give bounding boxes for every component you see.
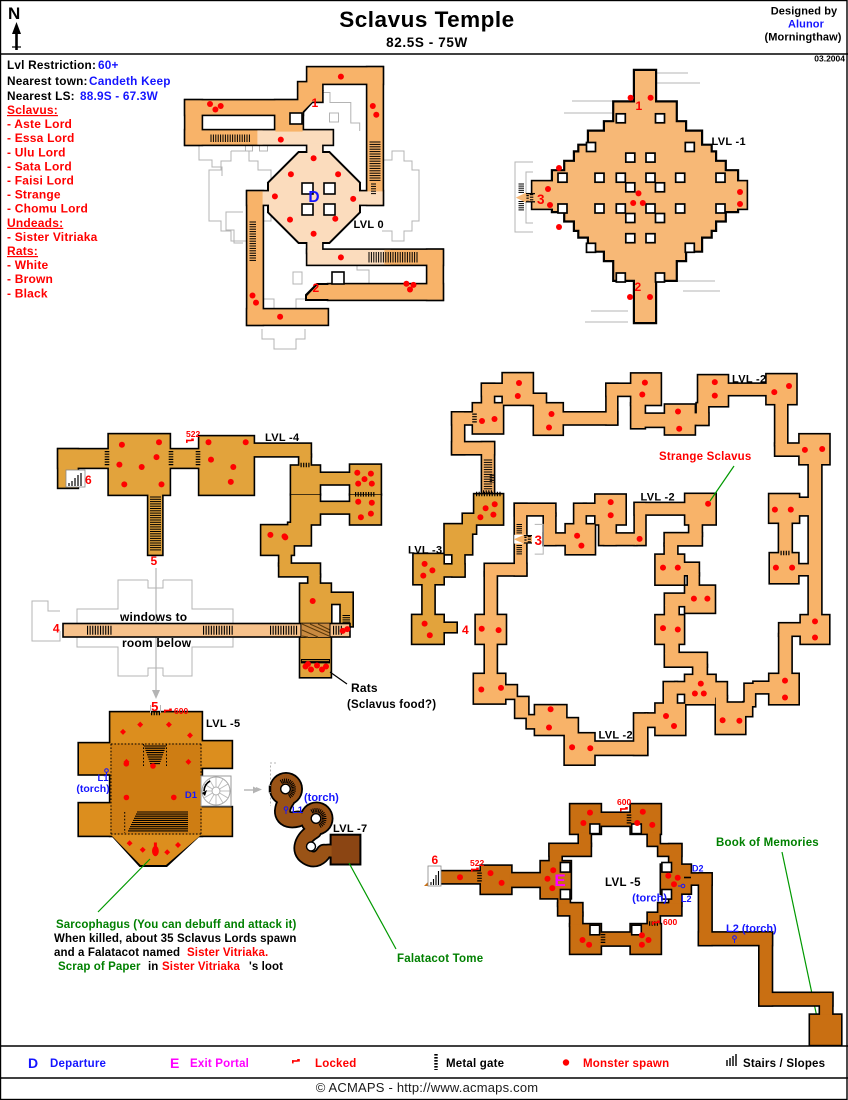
svg-text:Designed by: Designed by [771, 6, 838, 18]
svg-text:82.5S - 75W: 82.5S - 75W [386, 35, 468, 50]
svg-text:in: in [148, 961, 158, 973]
svg-text:4: 4 [462, 623, 469, 637]
svg-text:Nearest town:: Nearest town: [7, 74, 88, 88]
svg-text:Falatacot Tome: Falatacot Tome [397, 953, 483, 965]
svg-text:- Ulu Lord: - Ulu Lord [7, 145, 66, 159]
svg-text:LVL 0: LVL 0 [354, 219, 384, 231]
svg-text:Undeads:: Undeads: [7, 216, 63, 230]
svg-text:(Morningthaw): (Morningthaw) [764, 32, 841, 44]
svg-text:windows to: windows to [119, 610, 187, 624]
svg-text:03.2004: 03.2004 [814, 54, 845, 64]
svg-text:Departure: Departure [50, 1058, 106, 1070]
svg-text:- White: - White [7, 258, 49, 272]
svg-text:L1: L1 [292, 805, 304, 816]
svg-text:522: 522 [470, 858, 484, 868]
svg-text:- Sata Lord: - Sata Lord [7, 159, 72, 173]
svg-text:E: E [554, 871, 565, 890]
svg-text:600: 600 [617, 797, 631, 807]
svg-text:600: 600 [174, 706, 188, 716]
svg-text:2: 2 [312, 281, 319, 295]
svg-text:- Sister Vitriaka: - Sister Vitriaka [7, 230, 98, 244]
svg-text:4: 4 [53, 622, 60, 636]
svg-text:LVL -3: LVL -3 [408, 545, 442, 557]
svg-text:5: 5 [151, 699, 159, 714]
svg-text:Sclavus Temple: Sclavus Temple [339, 7, 514, 32]
svg-text:6: 6 [431, 853, 438, 867]
svg-text:LVL -5: LVL -5 [206, 718, 240, 730]
svg-text:Monster spawn: Monster spawn [583, 1058, 669, 1070]
svg-text:(Sclavus food?): (Sclavus food?) [347, 699, 436, 711]
svg-text:Locked: Locked [315, 1058, 356, 1070]
svg-text:(torch): (torch) [304, 792, 339, 804]
svg-text:600: 600 [663, 917, 677, 927]
svg-text:- Brown: - Brown [7, 272, 53, 286]
svg-text:- Essa Lord: - Essa Lord [7, 131, 75, 145]
svg-text:3: 3 [537, 192, 545, 207]
svg-text:L2: L2 [681, 894, 692, 904]
svg-text:LVL -2: LVL -2 [732, 374, 766, 386]
svg-text:1: 1 [311, 96, 318, 110]
svg-text:Book of Memories: Book of Memories [716, 837, 819, 849]
svg-text:3: 3 [535, 533, 543, 548]
svg-text:L2 (torch): L2 (torch) [726, 923, 777, 935]
svg-text:LVL -4: LVL -4 [265, 432, 300, 444]
svg-text:Alunor: Alunor [788, 19, 825, 31]
svg-text:(torch): (torch) [76, 783, 109, 795]
svg-text:Scrap of Paper: Scrap of Paper [58, 961, 141, 973]
svg-text:LVL -2: LVL -2 [599, 730, 633, 742]
svg-text:D1: D1 [185, 790, 198, 801]
svg-text:and a Falatacot named: and a Falatacot named [54, 947, 180, 959]
svg-text:room below: room below [122, 636, 192, 650]
svg-text:© ACMAPS - http://www.acmaps.c: © ACMAPS - http://www.acmaps.com [316, 1080, 539, 1095]
svg-text:LVL -2: LVL -2 [641, 492, 675, 504]
svg-text:6: 6 [85, 473, 92, 487]
svg-text:D2: D2 [692, 864, 704, 874]
svg-text:Stairs / Slopes: Stairs / Slopes [743, 1058, 825, 1070]
svg-text:LVL -1: LVL -1 [712, 136, 746, 148]
svg-text:- Chomu Lord: - Chomu Lord [7, 202, 88, 216]
svg-text:D: D [308, 189, 319, 206]
svg-text:60+: 60+ [98, 58, 119, 72]
svg-text:D: D [28, 1055, 38, 1071]
svg-text:'s loot: 's loot [249, 961, 283, 973]
svg-text:Sister Vitriaka.: Sister Vitriaka. [187, 947, 268, 959]
svg-text:- Strange: - Strange [7, 188, 61, 202]
svg-text:5: 5 [150, 554, 157, 568]
svg-text:Rats:: Rats: [7, 244, 38, 258]
svg-text:1: 1 [635, 99, 642, 113]
svg-text:E: E [170, 1055, 179, 1071]
svg-text:- Black: - Black [7, 286, 48, 300]
svg-text:N: N [8, 4, 21, 23]
svg-text:Sarcophagus (You can debuff a: Sarcophagus (You can debuff and attack i… [56, 919, 296, 931]
svg-text:LVL -5: LVL -5 [605, 877, 641, 889]
svg-text:(torch): (torch) [632, 893, 667, 905]
svg-text:Exit Portal: Exit Portal [190, 1058, 249, 1070]
svg-text:Rats: Rats [351, 681, 378, 695]
svg-text:2: 2 [634, 280, 641, 294]
svg-text:LVL -7: LVL -7 [333, 823, 367, 835]
svg-text:Nearest LS:: Nearest LS: [7, 89, 75, 103]
svg-text:- Aste Lord: - Aste Lord [7, 117, 72, 131]
svg-text:Sister Vitriaka: Sister Vitriaka [162, 961, 241, 973]
svg-text:88.9S - 67.3W: 88.9S - 67.3W [80, 89, 159, 103]
svg-text:522: 522 [186, 429, 200, 439]
svg-text:- Faisi Lord: - Faisi Lord [7, 174, 74, 188]
svg-text:Sclavus:: Sclavus: [7, 103, 58, 117]
svg-text:Strange Sclavus: Strange Sclavus [659, 451, 751, 463]
svg-text:Metal gate: Metal gate [446, 1058, 504, 1070]
svg-text:Candeth Keep: Candeth Keep [89, 74, 171, 88]
svg-text:When killed, about 35 Sclavus: When killed, about 35 Sclavus Lords spaw… [54, 933, 296, 945]
svg-text:Lvl Restriction:: Lvl Restriction: [7, 58, 96, 72]
